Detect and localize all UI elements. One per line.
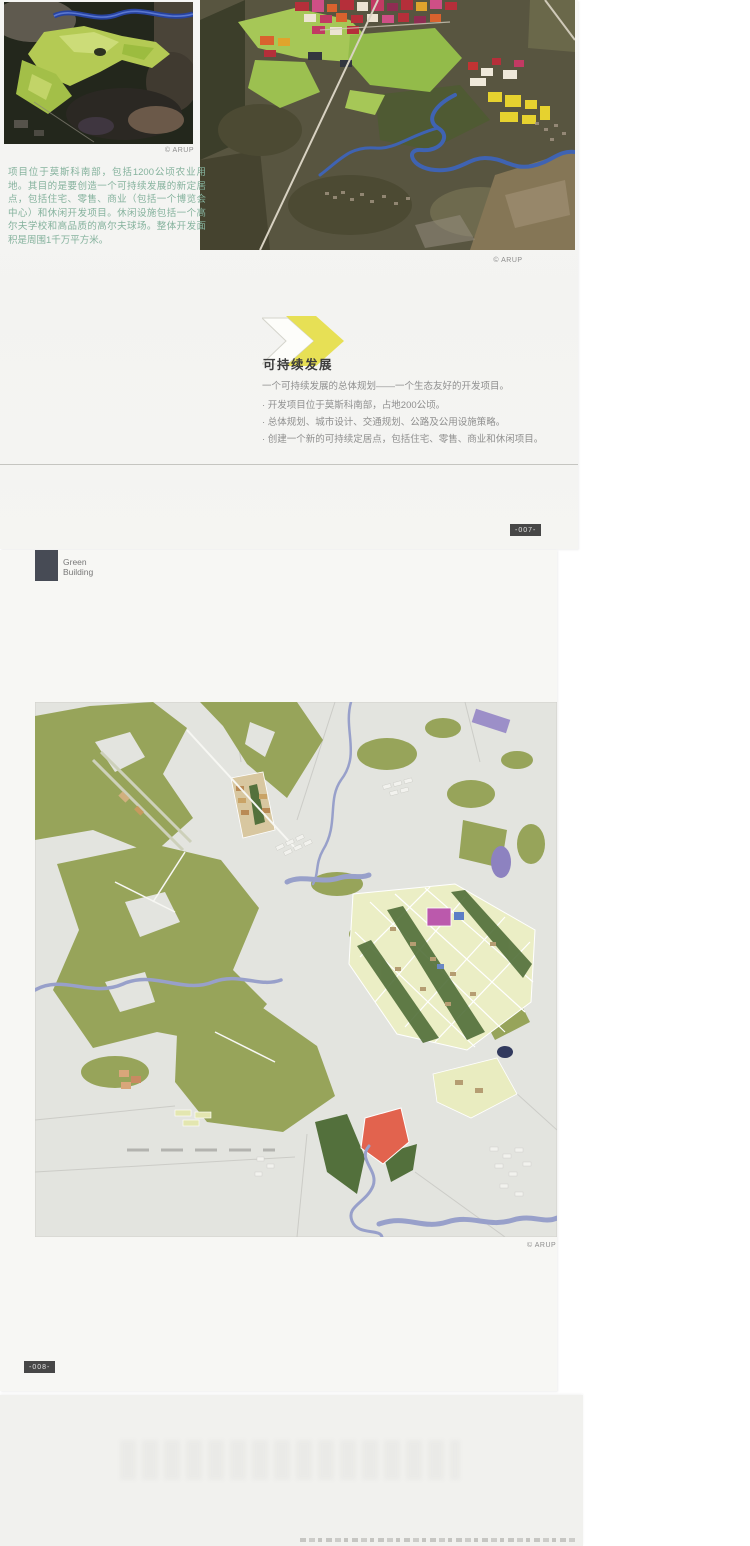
page-fold-line (0, 464, 578, 465)
page-number-badge: -008- (24, 1361, 55, 1373)
section-heading: 可持续发展 (263, 354, 333, 373)
aerial-photo-site-overview (200, 0, 575, 250)
scanned-book-spread: © ARUP (0, 0, 750, 1546)
photo-credit-right: © ARUP (468, 257, 548, 264)
series-title: Green Building (63, 557, 93, 577)
series-logo-square (35, 550, 58, 581)
photo-credit-left: © ARUP (118, 147, 194, 154)
page-008: Green Building (0, 550, 557, 1391)
section-intro: 一个可持续发展的总体规划——一个生态友好的开发项目。 (262, 378, 509, 392)
project-description: 项目位于莫斯科南部，包括1200公顷农业用地。其目的是要创造一个可持续发展的新定… (8, 166, 206, 248)
clipped-text-fragment (300, 1538, 576, 1542)
page-009-partial (0, 1395, 583, 1546)
masterplan-land-use-map (35, 702, 557, 1237)
show-through-ghost-text (120, 1440, 460, 1480)
series-title-line2: Building (63, 567, 93, 577)
series-title-line1: Green (63, 557, 93, 567)
bullet-item: · 开发项目位于莫斯科南部，占地200公顷。 (262, 397, 445, 411)
map-credit-clipped: © ARUP (527, 1242, 557, 1249)
bullet-item: · 创建一个新的可持续定居点，包括住宅、零售、商业和休闲项目。 (262, 431, 543, 445)
bullet-item: · 总体规划、城市设计、交通规划、公路及公用设施策略。 (262, 414, 505, 428)
page-007: © ARUP (0, 0, 578, 549)
aerial-photo-golf-masterplan (4, 2, 193, 144)
page-number-badge: -007- (510, 524, 541, 536)
